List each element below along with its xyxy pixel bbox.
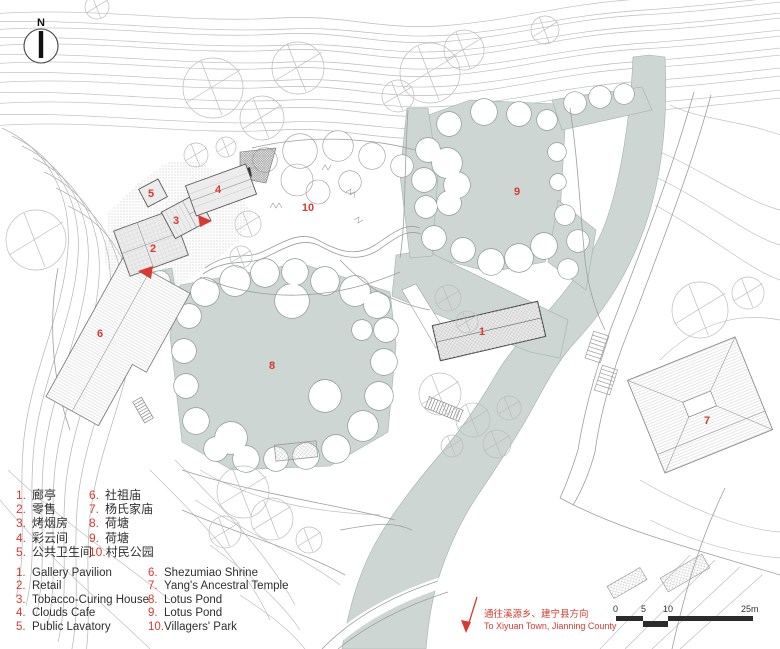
legend-item: 2.零售 <box>16 502 92 516</box>
legend-item: 8.Lotus Pond <box>148 594 289 607</box>
map-marker-1: 1 <box>479 326 485 338</box>
scale-tick-25m: 25m <box>741 604 759 614</box>
map-marker-2: 2 <box>150 243 156 255</box>
legend-chinese-col1: 1.廊亭 2.零售 3.烤烟房 4.彩云间 5.公共卫生间 <box>16 488 92 559</box>
site-plan-canvas: 1 2 3 4 5 6 7 8 9 10 N 通往溪源乡、建宁县方向 To Xi… <box>0 0 780 649</box>
legend-english-col2: 6.Shezumiao Shrine 7.Yang's Ancestral Te… <box>148 567 289 634</box>
direction-text-zh: 通往溪源乡、建宁县方向 <box>484 608 589 620</box>
direction-arrow <box>468 597 477 626</box>
legend-item: 4.彩云间 <box>16 531 92 545</box>
steps-by-shrine <box>133 397 154 423</box>
north-label: N <box>37 17 45 29</box>
legend-item: 3.烤烟房 <box>16 516 92 530</box>
legend-item: 10.Villagers' Park <box>148 621 289 634</box>
legend-item: 9.荷塘 <box>89 531 154 545</box>
map-marker-4: 4 <box>215 184 222 196</box>
legend-item: 6.Shezumiao Shrine <box>148 567 289 580</box>
legend-item: 7.Yang's Ancestral Temple <box>148 580 289 593</box>
map-marker-8: 8 <box>269 360 275 372</box>
legend-item: 2.Retail <box>16 580 149 593</box>
scale-bar: 0 5 10 25m <box>613 604 759 627</box>
scale-tick-10: 10 <box>663 604 673 614</box>
map-marker-3: 3 <box>173 215 179 227</box>
stairs-east <box>585 331 618 395</box>
building-6-shezumiao-shrine <box>46 257 190 434</box>
legend-item: 5.Public Lavatory <box>16 621 149 634</box>
legend-item: 9.Lotus Pond <box>148 607 289 620</box>
north-arrow: N <box>24 17 58 63</box>
small-building-b <box>660 554 710 592</box>
map-marker-9: 9 <box>514 186 520 198</box>
legend-chinese-col2: 6.社祖庙 7.杨氏家庙 8.荷塘 9.荷塘 10.村民公园 <box>89 488 154 559</box>
legend-item: 10.村民公园 <box>89 545 154 559</box>
scale-tick-0: 0 <box>613 604 618 614</box>
legend-item: 3.Tobacco-Curing House <box>16 594 149 607</box>
map-marker-7: 7 <box>704 415 710 427</box>
legend-item: 5.公共卫生间 <box>16 545 92 559</box>
legend-item: 6.社祖庙 <box>89 488 154 502</box>
legend-english-col1: 1.Gallery Pavilion 2.Retail 3.Tobacco-Cu… <box>16 567 149 634</box>
weir-bridge <box>424 396 464 421</box>
scale-tick-5: 5 <box>641 604 646 614</box>
legend-item: 8.荷塘 <box>89 516 154 530</box>
map-marker-5: 5 <box>148 188 154 200</box>
map-marker-10: 10 <box>302 202 314 214</box>
legend-item: 1.Gallery Pavilion <box>16 567 149 580</box>
small-building-a <box>607 567 647 598</box>
legend-item: 7.杨氏家庙 <box>89 502 154 516</box>
building-7-yangs-ancestral-temple <box>627 337 772 473</box>
legend-item: 4.Clouds Cafe <box>16 607 149 620</box>
direction-text-en: To Xiyuan Town, Jianning County <box>484 621 617 631</box>
direction-note: 通往溪源乡、建宁县方向 To Xiyuan Town, Jianning Cou… <box>461 597 617 633</box>
legend-item: 1.廊亭 <box>16 488 92 502</box>
map-marker-6: 6 <box>97 328 103 340</box>
